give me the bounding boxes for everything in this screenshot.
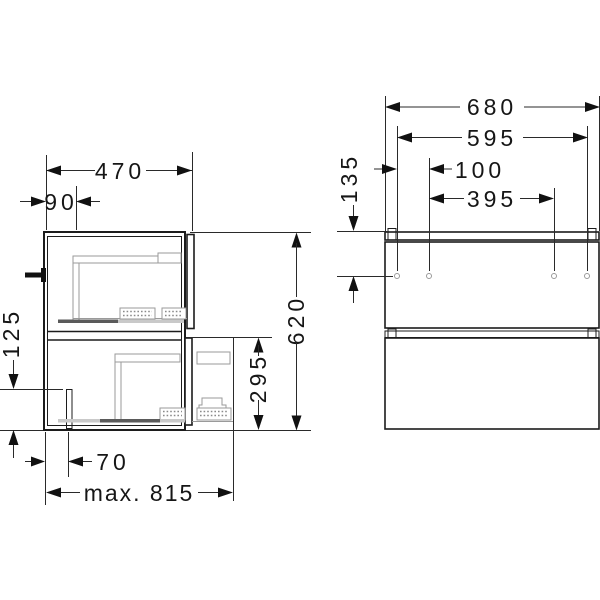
- dim-max-depth-label: max. 815: [84, 480, 195, 506]
- slide-block: [160, 408, 185, 420]
- dim-arrow: [46, 166, 61, 176]
- front-rail-cap: [197, 352, 230, 364]
- drawer-rail-cap: [158, 253, 181, 263]
- dim-arrow: [68, 457, 83, 467]
- lower-drawer-front: [385, 338, 599, 429]
- dim-arrow: [385, 102, 400, 112]
- drawer-top-rail: [115, 354, 180, 362]
- dim-arrow: [397, 133, 412, 143]
- side-view: 470 90 125 70: [0, 152, 311, 506]
- dim-inner-span-label: 395: [467, 186, 517, 212]
- dim-hole-pitch-label: 100: [455, 157, 505, 183]
- dim-depth-label: 470: [95, 158, 145, 184]
- dim-width-label: 680: [467, 94, 517, 120]
- dim-arrow: [9, 374, 19, 389]
- lower-drawer-front-panel: [185, 338, 192, 425]
- dim-total-height-label: 620: [283, 295, 309, 345]
- dim-arrow: [382, 164, 397, 174]
- dim-hole-span-label: 595: [467, 125, 517, 151]
- slide-block: [197, 408, 231, 420]
- top-edge-band: [385, 232, 599, 240]
- mounting-hole: [552, 274, 557, 279]
- slide-block: [162, 308, 186, 319]
- upper-drawer-front: [385, 242, 599, 328]
- corner-clip: [588, 329, 596, 338]
- drawer-back-bar: [115, 354, 121, 420]
- dim-back-offset-90: 90: [20, 186, 100, 230]
- front-view: 680 595 100 395: [336, 94, 600, 429]
- corner-clip: [388, 329, 396, 338]
- mounting-hole: [427, 274, 432, 279]
- drawer-back-bar: [73, 256, 79, 322]
- dim-arrow: [585, 102, 600, 112]
- dim-cutout-height-125: 125: [0, 308, 24, 458]
- dim-arrow: [349, 216, 359, 231]
- vanity-technical-drawing: 470 90 125 70: [0, 0, 600, 600]
- dim-arrow: [573, 133, 588, 143]
- dim-arrow: [177, 166, 192, 176]
- dim-arrow: [46, 488, 61, 498]
- mid-gap-band: [385, 331, 599, 338]
- wall-bracket: [25, 268, 46, 282]
- slide-rail-dark: [58, 320, 118, 324]
- dim-arrow: [218, 488, 233, 498]
- dim-back-offset-label: 90: [44, 189, 78, 215]
- dim-cutout-offset-label: 70: [96, 449, 130, 475]
- dim-arrow: [429, 164, 444, 174]
- dim-arrow: [429, 194, 444, 204]
- slide-block: [120, 308, 155, 319]
- dim-arrow: [539, 194, 554, 204]
- dim-arrow: [76, 197, 91, 207]
- upper-drawer-front-panel: [187, 235, 194, 329]
- drawer-top-rail: [73, 256, 158, 263]
- dim-arrow: [254, 415, 264, 430]
- technical-drawing-page: 470 90 125 70: [0, 0, 600, 600]
- slide-bracket: [199, 398, 226, 408]
- dim-max-depth-815: max. 815: [46, 480, 233, 506]
- mounting-hole: [395, 274, 400, 279]
- dim-arrow: [9, 430, 19, 445]
- mounting-hole: [585, 274, 590, 279]
- bracket-plate: [41, 268, 46, 282]
- dim-front-height-label: 295: [245, 353, 271, 403]
- dim-arrow: [292, 416, 302, 431]
- dim-arrow: [31, 457, 45, 467]
- dim-front-height-295: 295: [245, 338, 271, 431]
- dim-arrow: [349, 276, 359, 291]
- dim-cutout-height-label: 125: [0, 308, 24, 358]
- slide-rail-dark: [100, 419, 160, 423]
- dim-top-to-holes-label: 135: [336, 153, 362, 203]
